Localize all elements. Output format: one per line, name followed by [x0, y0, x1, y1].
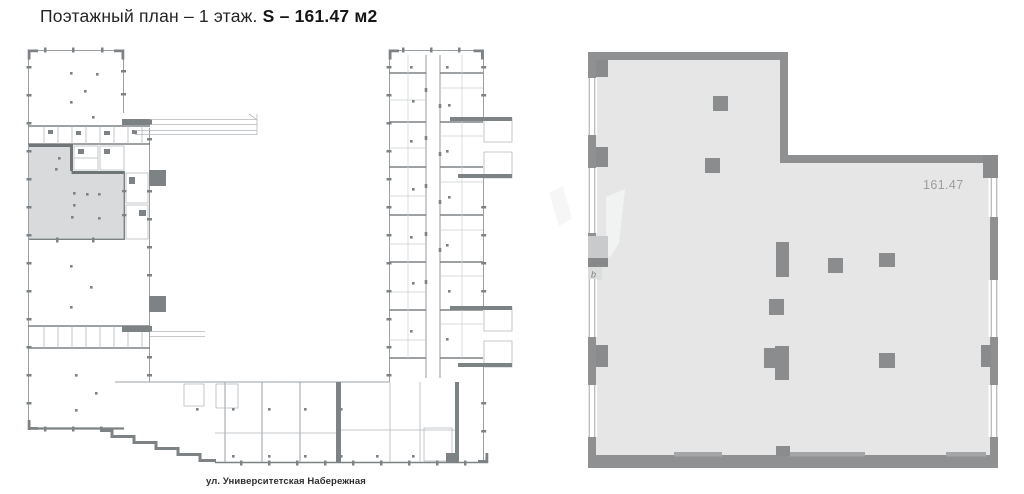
left-wall-dark-band	[588, 258, 608, 267]
detail-unit-floor[interactable]	[596, 60, 990, 455]
area-label: 161.47	[923, 178, 964, 192]
right-wing-outline	[389, 50, 484, 463]
windows-right	[989, 178, 1000, 437]
corner-marks	[28, 50, 489, 464]
entry-stub	[446, 453, 456, 462]
wall-stub	[776, 242, 789, 277]
right-wing-subrooms	[389, 55, 483, 358]
connector-wall-top	[122, 119, 152, 125]
wing-protrusion-1	[149, 170, 166, 186]
watermark	[549, 186, 572, 226]
thick-wall-2	[455, 382, 459, 462]
detail-floor-plan: 161.47 b	[587, 52, 1000, 468]
wing-protrusion-2	[149, 296, 166, 312]
corridor-door-headers	[425, 88, 442, 284]
balcony-walls	[450, 117, 512, 367]
overview-floor-plan	[27, 48, 513, 466]
right-wing-corridor	[426, 55, 440, 378]
wall-ticks	[27, 48, 487, 466]
bottom-wing-partitions	[225, 382, 300, 462]
right-wing-partitions	[389, 73, 483, 358]
thick-wall-1	[336, 382, 341, 462]
connector-wall-bottom	[122, 326, 152, 332]
door-jamb	[776, 446, 790, 456]
entry-marker-label: b	[591, 270, 596, 280]
floor-plan-canvas: 161.47 b	[0, 0, 1024, 494]
balconies	[484, 118, 512, 367]
left-wall-light-block	[588, 236, 608, 258]
stepped-edge	[100, 431, 216, 461]
street-label: ул. Университетская Набережная	[206, 476, 366, 487]
